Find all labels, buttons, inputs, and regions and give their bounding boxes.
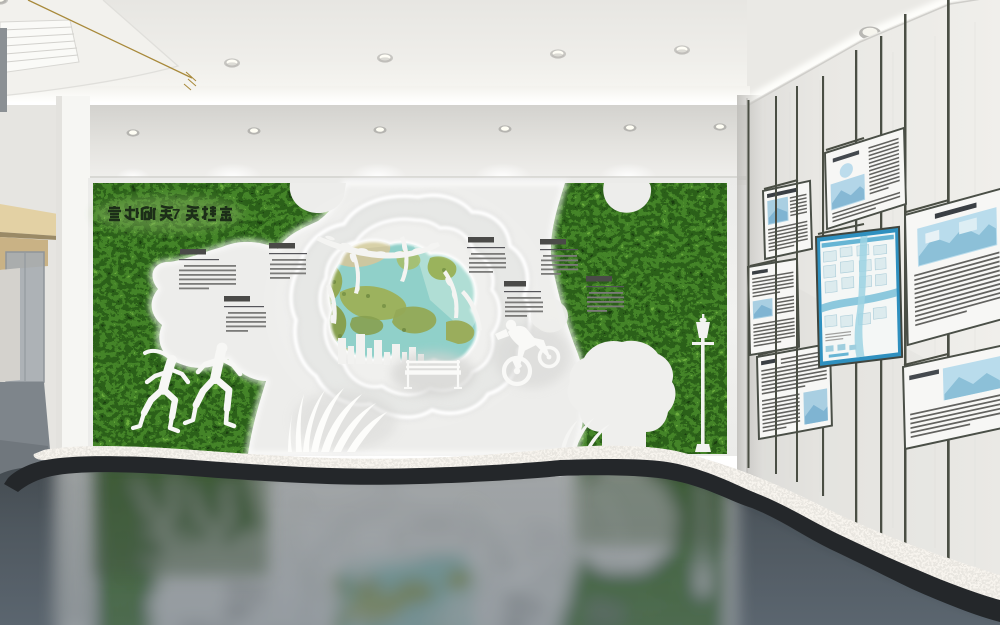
svg-text:7: 7 bbox=[172, 206, 180, 223]
